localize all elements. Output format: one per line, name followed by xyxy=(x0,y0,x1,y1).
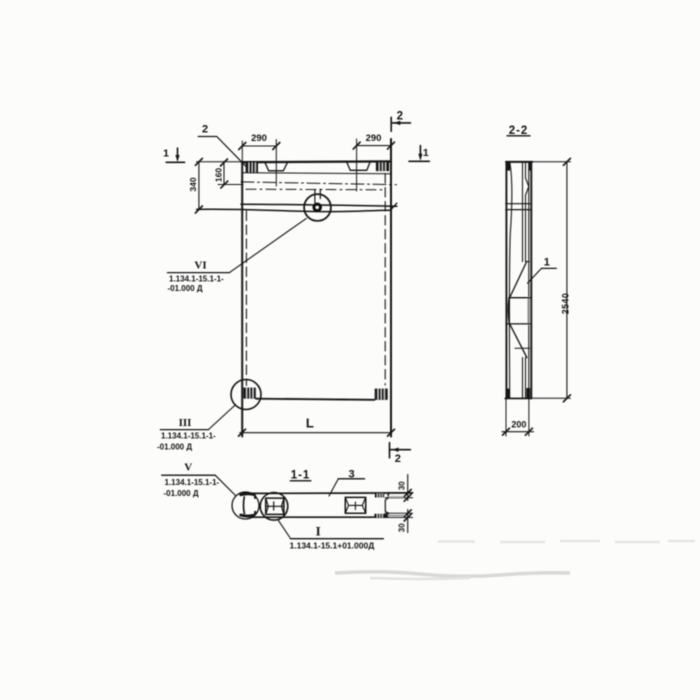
svg-text:1.134.1-15.1-1-: 1.134.1-15.1-1- xyxy=(165,478,220,487)
svg-text:1: 1 xyxy=(423,147,429,159)
svg-text:1: 1 xyxy=(544,257,550,269)
svg-text:L: L xyxy=(306,415,314,430)
svg-text:2540: 2540 xyxy=(560,293,570,315)
svg-text:I: I xyxy=(316,524,321,539)
svg-text:340: 340 xyxy=(188,177,198,191)
svg-text:30: 30 xyxy=(398,523,407,532)
svg-text:1-1: 1-1 xyxy=(291,469,311,481)
svg-text:1.134.1-15.1-1-: 1.134.1-15.1-1- xyxy=(169,274,224,283)
svg-text:-01.000 Д: -01.000 Д xyxy=(164,489,199,498)
svg-text:2: 2 xyxy=(395,453,401,465)
svg-text:160: 160 xyxy=(213,168,223,182)
svg-text:-01.000 Д: -01.000 Д xyxy=(157,442,192,451)
svg-text:V: V xyxy=(184,461,192,473)
svg-text:-01.000 Д: -01.000 Д xyxy=(168,284,203,293)
svg-text:2-2: 2-2 xyxy=(509,125,529,137)
svg-text:2: 2 xyxy=(202,124,208,136)
svg-text:2: 2 xyxy=(397,110,403,122)
svg-text:30: 30 xyxy=(397,481,406,490)
svg-text:200: 200 xyxy=(511,420,526,430)
svg-text:1: 1 xyxy=(163,148,169,160)
svg-text:290: 290 xyxy=(251,133,267,144)
svg-text:3: 3 xyxy=(348,469,354,481)
svg-text:1.134.1-15.1-1-: 1.134.1-15.1-1- xyxy=(161,431,216,440)
svg-text:290: 290 xyxy=(366,133,382,144)
svg-text:VI: VI xyxy=(194,260,206,272)
svg-text:III: III xyxy=(179,417,192,429)
svg-text:1.134.1-15.1+01.000Д: 1.134.1-15.1+01.000Д xyxy=(290,540,375,550)
